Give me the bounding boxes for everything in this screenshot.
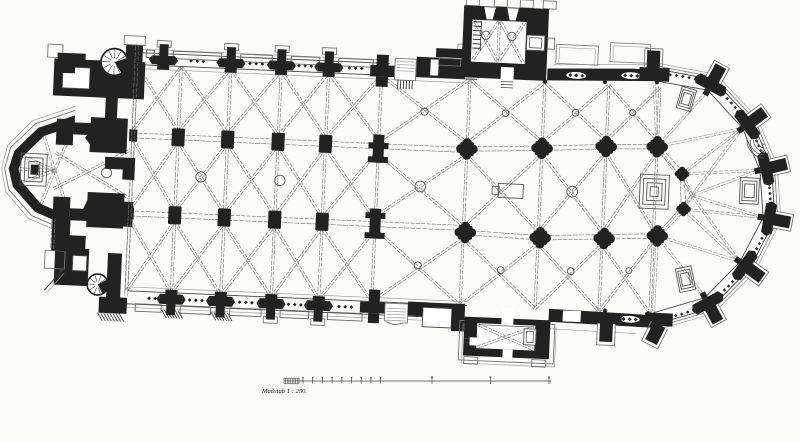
svg-text:Maßstab 1 : 250.: Maßstab 1 : 250. xyxy=(261,388,307,395)
